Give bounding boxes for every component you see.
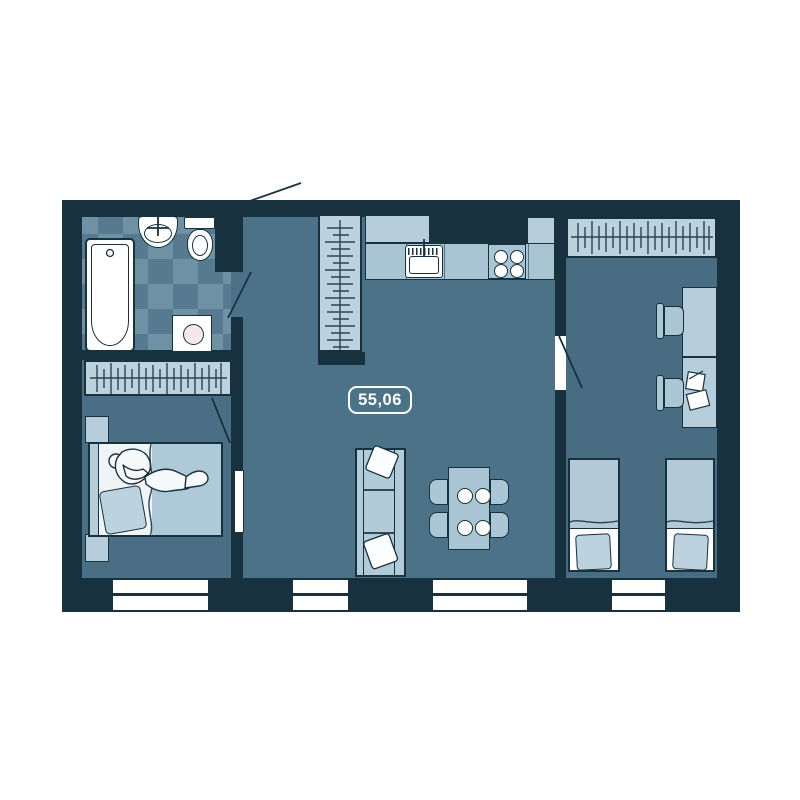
desk-chair [656, 375, 664, 411]
kitchen-sink-basin [409, 256, 439, 274]
counter-seam [444, 244, 445, 279]
door-swing-icon [250, 183, 301, 201]
kitchen-counter [365, 243, 555, 280]
pillow-icon [672, 533, 709, 571]
hallway-closet [318, 214, 362, 352]
pillow-icon [98, 485, 147, 536]
burner-icon [510, 250, 524, 264]
plate-icon [475, 520, 491, 536]
wall-bathroom-pier [215, 217, 243, 272]
single-bed-icon [665, 458, 715, 572]
wall-bathroom-stub [231, 317, 243, 360]
desk-chair [664, 306, 684, 336]
wall-bedroom-left-east [231, 360, 243, 578]
single-bed-icon [568, 458, 620, 572]
bedroom-left-wardrobe [84, 360, 232, 396]
wall-mid-upper [555, 217, 566, 336]
floor-plan: 55,06 [0, 0, 800, 800]
dining-chair [429, 479, 448, 505]
sofa-backrest [394, 450, 404, 575]
double-bed-icon [88, 442, 223, 537]
blanket [570, 460, 618, 529]
desk-chair [664, 378, 684, 408]
sofa-seam [363, 532, 395, 534]
plate-icon [457, 520, 473, 536]
area-label: 55,06 [348, 386, 412, 414]
sofa-armrest [357, 450, 364, 575]
window-icon [612, 580, 665, 610]
counter-seam [528, 244, 529, 279]
blanket [667, 460, 713, 529]
toilet-icon [187, 229, 213, 261]
bedroom-right-wardrobe [566, 217, 717, 258]
washing-machine-icon [172, 315, 212, 352]
plate-icon [475, 488, 491, 504]
wall-mid-lower [555, 390, 566, 578]
burner-icon [510, 264, 524, 278]
desk-icon [682, 287, 717, 357]
toilet-tank [184, 217, 215, 229]
burner-icon [494, 264, 508, 278]
dining-chair [429, 512, 448, 538]
nightstand [85, 534, 109, 562]
dish-rack [408, 248, 440, 255]
sofa-seam [363, 489, 395, 491]
dining-chair [490, 512, 509, 538]
toilet-seat [192, 235, 208, 256]
wall-right [717, 200, 740, 612]
bathtub-basin [91, 244, 129, 346]
pillow-icon [575, 533, 612, 571]
kitchen-sink-icon [405, 245, 443, 278]
plate-icon [457, 488, 473, 504]
wall-left [62, 200, 82, 612]
stove-icon [488, 244, 526, 279]
sink-basin [144, 224, 172, 243]
washer-drum [183, 324, 204, 345]
desk-chair [656, 303, 664, 339]
dining-table-icon [448, 467, 490, 550]
door-leaf-icon [234, 470, 244, 533]
bathtub-icon [85, 238, 135, 352]
kitchen-cabinet-right [527, 217, 555, 244]
headboard [90, 444, 99, 535]
sofa-icon [355, 448, 406, 577]
wall-top-recess [430, 200, 527, 243]
kitchen-cabinet-left [365, 215, 430, 243]
window-icon [293, 580, 348, 610]
window-icon [113, 580, 208, 610]
nightstand [85, 416, 109, 443]
dining-chair [490, 479, 509, 505]
blanket [152, 444, 221, 535]
closet-base [318, 352, 365, 365]
burner-icon [494, 250, 508, 264]
window-icon [433, 580, 527, 610]
bathroom-doorway-floor [231, 272, 243, 317]
desk-icon [682, 357, 717, 428]
